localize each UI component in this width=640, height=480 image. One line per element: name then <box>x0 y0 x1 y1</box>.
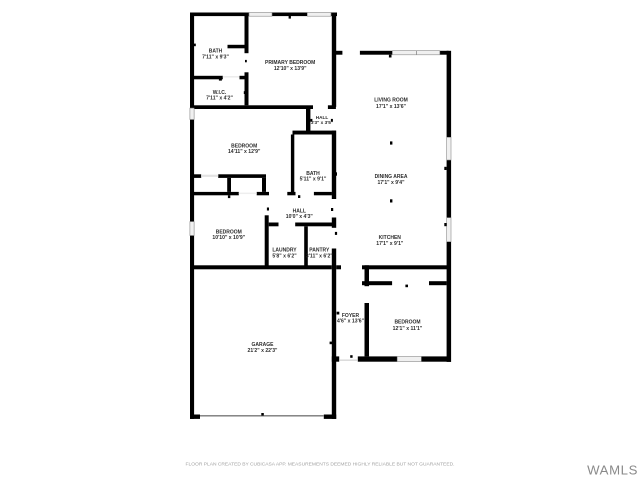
svg-text:7'11" x 9'3": 7'11" x 9'3" <box>202 54 229 60</box>
svg-text:17'1" x 13'6": 17'1" x 13'6" <box>376 104 406 110</box>
svg-text:21'2" x 22'3": 21'2" x 22'3" <box>248 348 278 354</box>
svg-text:3'3" x 3'5": 3'3" x 3'5" <box>311 120 333 125</box>
svg-text:FLOOR PLAN CREATED BY CUBICASA: FLOOR PLAN CREATED BY CUBICASA APP. MEAS… <box>186 462 455 468</box>
svg-text:12'10" x 13'9": 12'10" x 13'9" <box>274 66 307 72</box>
svg-text:WAMLS: WAMLS <box>587 462 638 477</box>
svg-text:10'0" x 4'3": 10'0" x 4'3" <box>286 214 314 220</box>
svg-text:BEDROOM: BEDROOM <box>394 320 420 326</box>
svg-text:4'6" x 13'6": 4'6" x 13'6" <box>337 319 365 325</box>
svg-text:5'11" x 9'1": 5'11" x 9'1" <box>300 177 327 183</box>
svg-text:10'10" x 10'9": 10'10" x 10'9" <box>212 235 245 241</box>
svg-text:12'1" x 11'1": 12'1" x 11'1" <box>393 326 423 332</box>
svg-text:DINING AREA: DINING AREA <box>375 174 408 180</box>
svg-text:14'11" x 12'9": 14'11" x 12'9" <box>228 149 261 155</box>
svg-text:7'11" x 4'2": 7'11" x 4'2" <box>206 95 233 101</box>
svg-text:5'8" x 6'2": 5'8" x 6'2" <box>272 253 297 259</box>
svg-text:3'11" x 6'2": 3'11" x 6'2" <box>306 253 333 259</box>
svg-text:17'1" x 9'4": 17'1" x 9'4" <box>377 180 405 186</box>
svg-text:LIVING ROOM: LIVING ROOM <box>374 98 408 104</box>
svg-text:17'1" x 9'1": 17'1" x 9'1" <box>376 241 404 247</box>
svg-text:PRIMARY BEDROOM: PRIMARY BEDROOM <box>265 60 315 66</box>
